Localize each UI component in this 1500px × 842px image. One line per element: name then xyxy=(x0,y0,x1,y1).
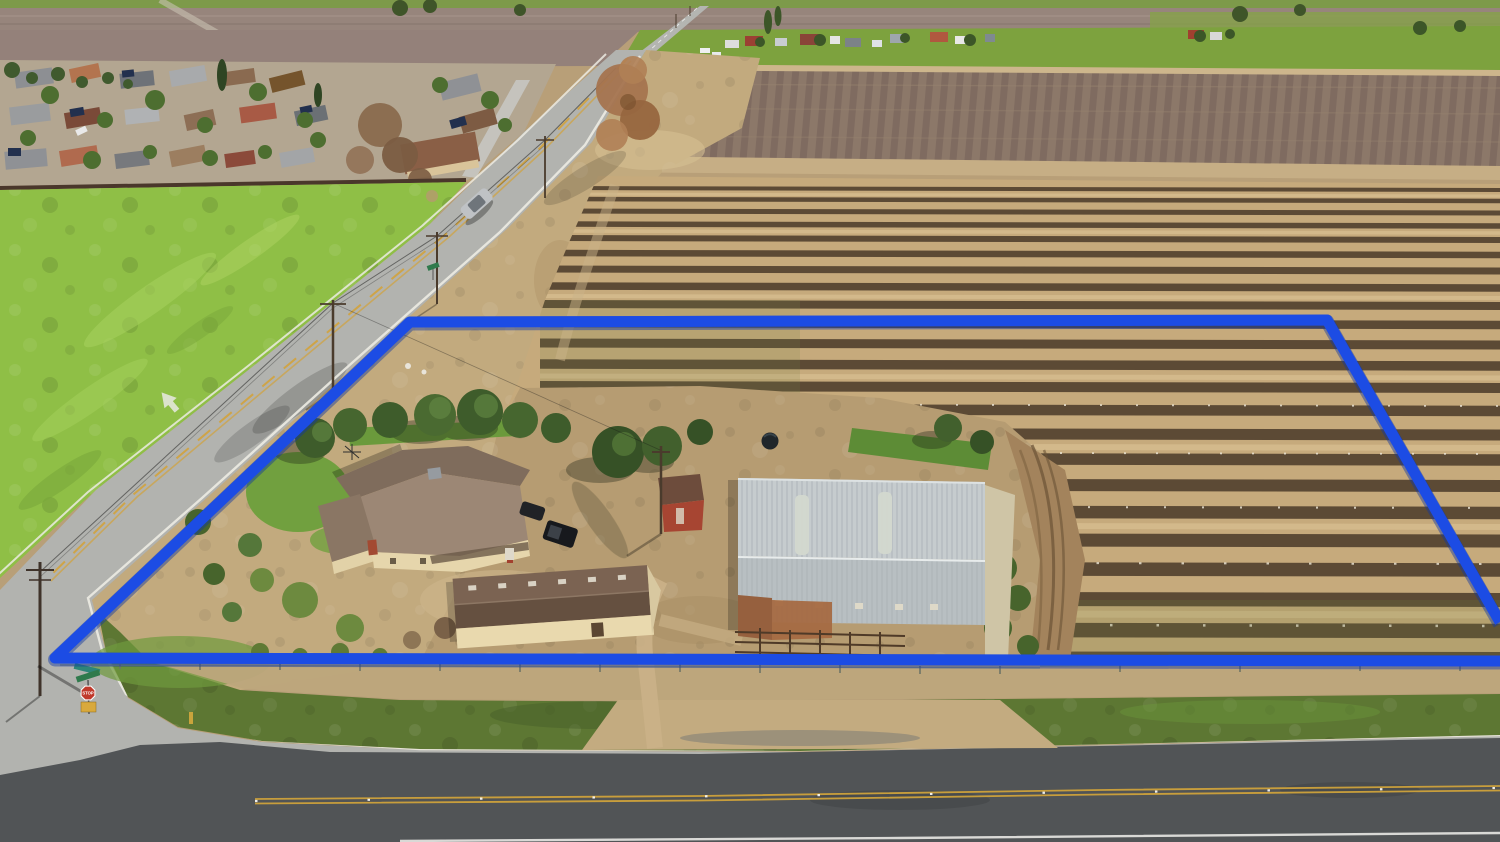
aerial-photo-canvas: STOP Drone aerial photo of a rural homes… xyxy=(0,0,1500,842)
water-tank xyxy=(762,433,779,450)
shed-roof xyxy=(658,474,704,505)
residential-neighborhood xyxy=(0,59,556,192)
front-door xyxy=(505,548,514,560)
outbuilding xyxy=(446,564,664,649)
red-shed xyxy=(658,474,704,532)
chimney xyxy=(367,540,378,556)
stop-sign-label: STOP xyxy=(82,691,94,696)
yellow-marker-post xyxy=(189,712,193,724)
roof-vent xyxy=(427,467,441,480)
skylight xyxy=(878,492,892,554)
highway-asphalt xyxy=(0,738,1500,842)
outbuilding-door xyxy=(591,622,604,637)
skylight xyxy=(795,495,809,555)
yellow-warning-sign xyxy=(81,702,96,712)
aerial-photo: STOP Drone aerial photo of a rural homes… xyxy=(0,0,1500,842)
stop-sign: STOP xyxy=(81,686,95,700)
